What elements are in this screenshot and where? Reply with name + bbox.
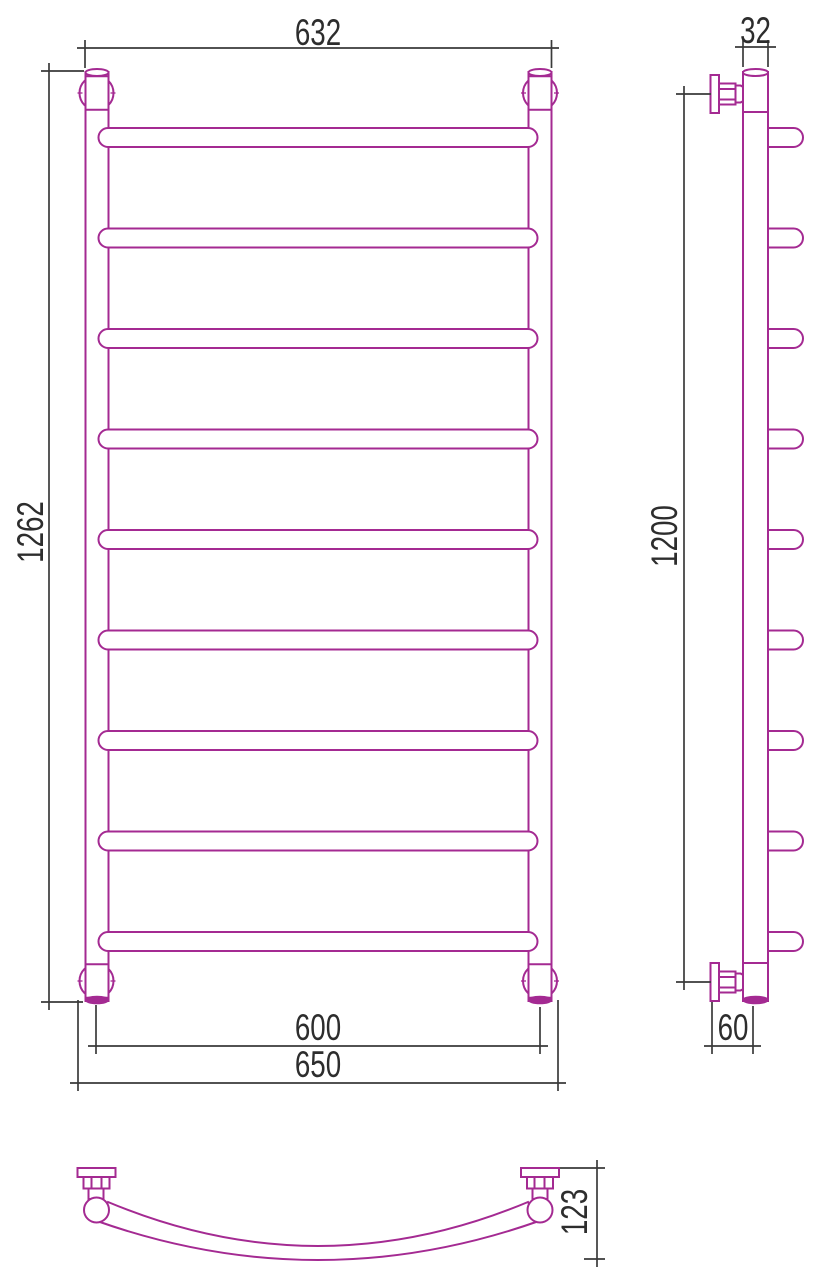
dimension-curve-depth-123: 123: [553, 1160, 605, 1267]
side-top-cap: [743, 69, 768, 76]
fitting-nut: [84, 1177, 110, 1189]
rung: [99, 430, 538, 449]
bracket-flange: [711, 75, 720, 113]
bottom-view: [78, 1168, 560, 1260]
bracket-flange: [711, 963, 720, 1001]
rung: [99, 329, 538, 348]
side-tube: [743, 72, 768, 1001]
dim-label-bottom-connection: 600: [295, 1006, 341, 1048]
dimension-top-width-632: 632: [77, 11, 559, 68]
wall-bracket-top: [711, 75, 747, 113]
rung: [99, 530, 538, 549]
dim-label-wall-offset: 60: [718, 1006, 749, 1048]
fitting-ball: [84, 1198, 109, 1223]
top-cap: [86, 69, 109, 76]
dimension-wall-offset-60: 60: [704, 1002, 761, 1054]
side-view: [711, 69, 804, 1004]
rung: [99, 128, 538, 147]
front-view: [78, 69, 560, 1004]
dim-label-top-width: 632: [295, 11, 341, 53]
wall-bracket-bottom: [711, 963, 747, 1001]
side-bottom-cap: [743, 997, 768, 1004]
dimension-tube-depth-32: 32: [735, 9, 776, 67]
dim-label-curve-depth: 123: [553, 1189, 595, 1235]
dim-label-tube-depth: 32: [740, 9, 771, 51]
bottom-cap: [529, 997, 552, 1004]
rung: [99, 932, 538, 951]
rung: [99, 631, 538, 650]
dim-label-bottom-overall: 650: [295, 1043, 341, 1085]
curved-rung: [97, 1202, 539, 1260]
rung: [99, 832, 538, 851]
technical-drawing: 632 1262 600 650 32 1200 60: [0, 0, 823, 1280]
bracket-nut: [719, 84, 736, 105]
drawing-sheet: 632 1262 600 650 32 1200 60: [0, 0, 823, 1280]
fitting-ball: [528, 1198, 553, 1223]
rung: [99, 229, 538, 248]
fitting-flange: [78, 1168, 116, 1177]
dim-label-mounting-height: 1200: [643, 505, 685, 567]
fitting-flange: [521, 1168, 559, 1177]
fitting-nut: [527, 1177, 553, 1189]
top-cap: [529, 69, 552, 76]
dim-label-overall-height: 1262: [9, 501, 51, 563]
front-rungs: [99, 128, 538, 951]
bracket-nut: [719, 972, 736, 993]
dimension-overall-height-1262: 1262: [9, 63, 84, 1010]
rung: [99, 731, 538, 750]
bottom-cap: [86, 997, 109, 1004]
dimension-mounting-height-1200: 1200: [643, 86, 711, 990]
